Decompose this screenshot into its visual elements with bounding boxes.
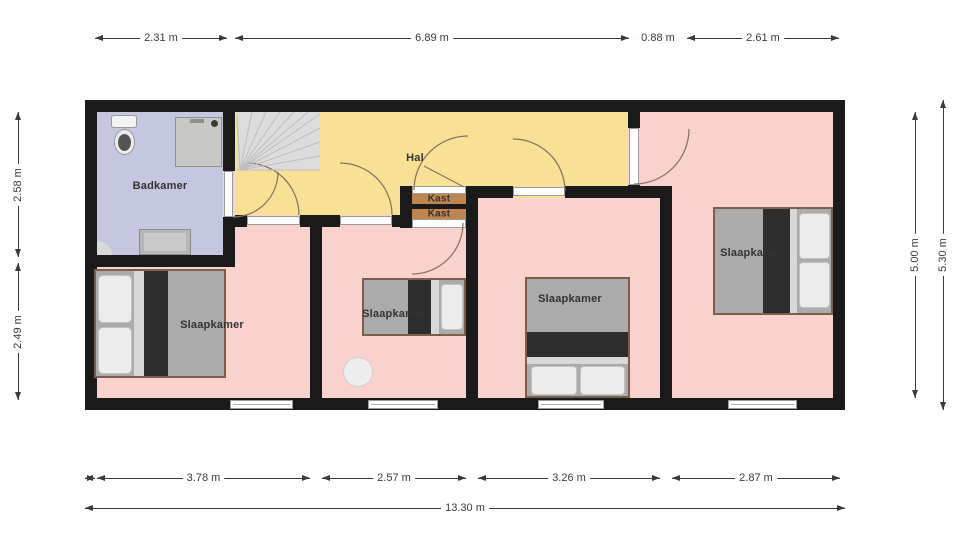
door-closet-bottom xyxy=(412,219,466,228)
toilet-bowl-inner xyxy=(118,134,131,151)
dimension-arrow xyxy=(478,475,486,481)
wall-outer-top xyxy=(85,100,845,112)
dimension-annotation: 2.58 m xyxy=(13,112,23,257)
dimension-annotation: 0.88 m xyxy=(637,33,679,43)
dimension-arrow xyxy=(15,392,21,400)
window-bedroom3-line xyxy=(541,404,601,405)
dimension-arrow xyxy=(15,263,21,271)
dimension-arrow xyxy=(831,35,839,41)
wall-hall-bottom-d xyxy=(478,186,513,198)
dimension-arrow xyxy=(85,505,93,511)
dimension-annotation: 5.30 m xyxy=(938,100,948,410)
door-bedroom4 xyxy=(629,128,639,185)
dimension-annotation: 2.31 m xyxy=(95,33,227,43)
dimension-label: 2.87 m xyxy=(735,472,777,484)
room-label: Slaapkamer xyxy=(362,308,426,320)
dimension-arrow xyxy=(87,475,95,481)
dimension-annotation xyxy=(85,473,95,483)
bed4-duvet xyxy=(763,209,790,313)
bed2-duvet xyxy=(408,280,431,334)
dimension-label: 3.78 m xyxy=(183,472,225,484)
dimension-label: 5.30 m xyxy=(937,234,949,276)
wall-bedroom1-2 xyxy=(310,215,322,410)
shower-handle xyxy=(190,119,204,123)
toilet-tank xyxy=(111,115,137,128)
dimension-annotation: 5.00 m xyxy=(910,112,920,398)
wall-bathroom-bottom xyxy=(85,255,235,267)
bed1-pillow-2 xyxy=(98,327,132,374)
dimension-annotation: 2.87 m xyxy=(672,473,840,483)
dimension-arrow xyxy=(837,505,845,511)
dimension-annotation: 13.30 m xyxy=(85,503,845,513)
dimension-arrow xyxy=(672,475,680,481)
bed3-duvet xyxy=(527,332,628,357)
bedroom2-stool xyxy=(343,357,373,387)
bed4-pillow-2 xyxy=(799,262,830,308)
dimension-arrow xyxy=(940,100,946,108)
window-bedroom1-line xyxy=(233,404,290,405)
dimension-annotation: 3.26 m xyxy=(478,473,660,483)
dimension-label: 5.00 m xyxy=(909,234,921,276)
bed1-duvet xyxy=(144,271,168,376)
dimension-arrow xyxy=(15,249,21,257)
bed3-sheet xyxy=(527,357,628,364)
room-label: Hal xyxy=(406,152,424,164)
room-label: Kast xyxy=(428,209,450,220)
dimension-arrow xyxy=(322,475,330,481)
dimension-annotation: 2.61 m xyxy=(687,33,839,43)
room-label: Badkamer xyxy=(133,180,188,192)
wall-bedroom2-3 xyxy=(466,186,478,410)
dimension-arrow xyxy=(458,475,466,481)
dimension-arrow xyxy=(652,475,660,481)
room-label: Kast xyxy=(428,194,450,205)
room-label: Slaapkamer xyxy=(538,293,602,305)
dimension-arrow xyxy=(621,35,629,41)
door-bedroom3 xyxy=(513,187,565,196)
dimension-annotation: 3.78 m xyxy=(97,473,310,483)
dimension-label: 2.58 m xyxy=(12,164,24,206)
bedroom3-top-patch xyxy=(478,198,628,215)
dimension-annotation: 6.89 m xyxy=(235,33,629,43)
wall-hall-bottom-a xyxy=(235,215,247,227)
wall-hall-end-lower xyxy=(628,185,640,198)
dimension-label: 3.26 m xyxy=(548,472,590,484)
dimension-label: 2.31 m xyxy=(140,32,182,44)
bed3-pillow-1 xyxy=(531,366,577,395)
stairs-fill xyxy=(237,112,320,170)
wall-hall-bottom-c xyxy=(392,215,412,227)
dimension-label: 2.49 m xyxy=(12,311,24,353)
dimension-arrow xyxy=(95,35,103,41)
dimension-arrow xyxy=(912,390,918,398)
room-label: Slaapkamer xyxy=(180,319,244,331)
dimension-arrow xyxy=(940,402,946,410)
floor-plan-canvas: BadkamerHalKastKastSlaapkamerSlaapkamerS… xyxy=(0,0,960,539)
wall-bedroom3-4 xyxy=(660,186,672,410)
door-bathroom xyxy=(224,171,233,217)
dimension-arrow xyxy=(912,112,918,120)
dimension-arrow xyxy=(832,475,840,481)
dimension-annotation: 2.57 m xyxy=(322,473,466,483)
window-bedroom2-line xyxy=(371,404,435,405)
dimension-arrow xyxy=(302,475,310,481)
wall-outer-right xyxy=(833,100,845,410)
window-bedroom4-line xyxy=(731,404,794,405)
door-bedroom1 xyxy=(247,216,300,225)
door-bedroom2 xyxy=(340,216,392,225)
wall-hall-end-upper xyxy=(628,112,640,128)
dimension-label: 0.88 m xyxy=(637,32,679,44)
room-label: Slaapkamer xyxy=(720,247,784,259)
shower-faucet-dot xyxy=(211,120,218,127)
dimension-label: 2.57 m xyxy=(373,472,415,484)
bathroom-vanity-inner xyxy=(144,233,186,251)
dimension-label: 6.89 m xyxy=(411,32,453,44)
bed4-sheet xyxy=(790,209,797,313)
dimension-arrow xyxy=(687,35,695,41)
bed1-sheet xyxy=(134,271,144,376)
bed3-pillow-2 xyxy=(580,366,625,395)
dimension-arrow xyxy=(97,475,105,481)
dimension-label: 13.30 m xyxy=(441,502,489,514)
dimension-arrow xyxy=(15,112,21,120)
bed4-pillow-1 xyxy=(799,213,830,259)
dimension-arrow xyxy=(235,35,243,41)
bed2-pillow xyxy=(441,284,463,330)
dimension-annotation: 2.49 m xyxy=(13,263,23,400)
wall-hall-bottom-e xyxy=(565,186,672,198)
bed2-sheet xyxy=(431,280,439,334)
bed1-pillow-1 xyxy=(98,275,132,323)
floor-plan: BadkamerHalKastKastSlaapkamerSlaapkamerS… xyxy=(0,0,960,539)
dimension-arrow xyxy=(219,35,227,41)
dimension-label: 2.61 m xyxy=(742,32,784,44)
wall-bathroom-right-upper xyxy=(223,112,235,171)
